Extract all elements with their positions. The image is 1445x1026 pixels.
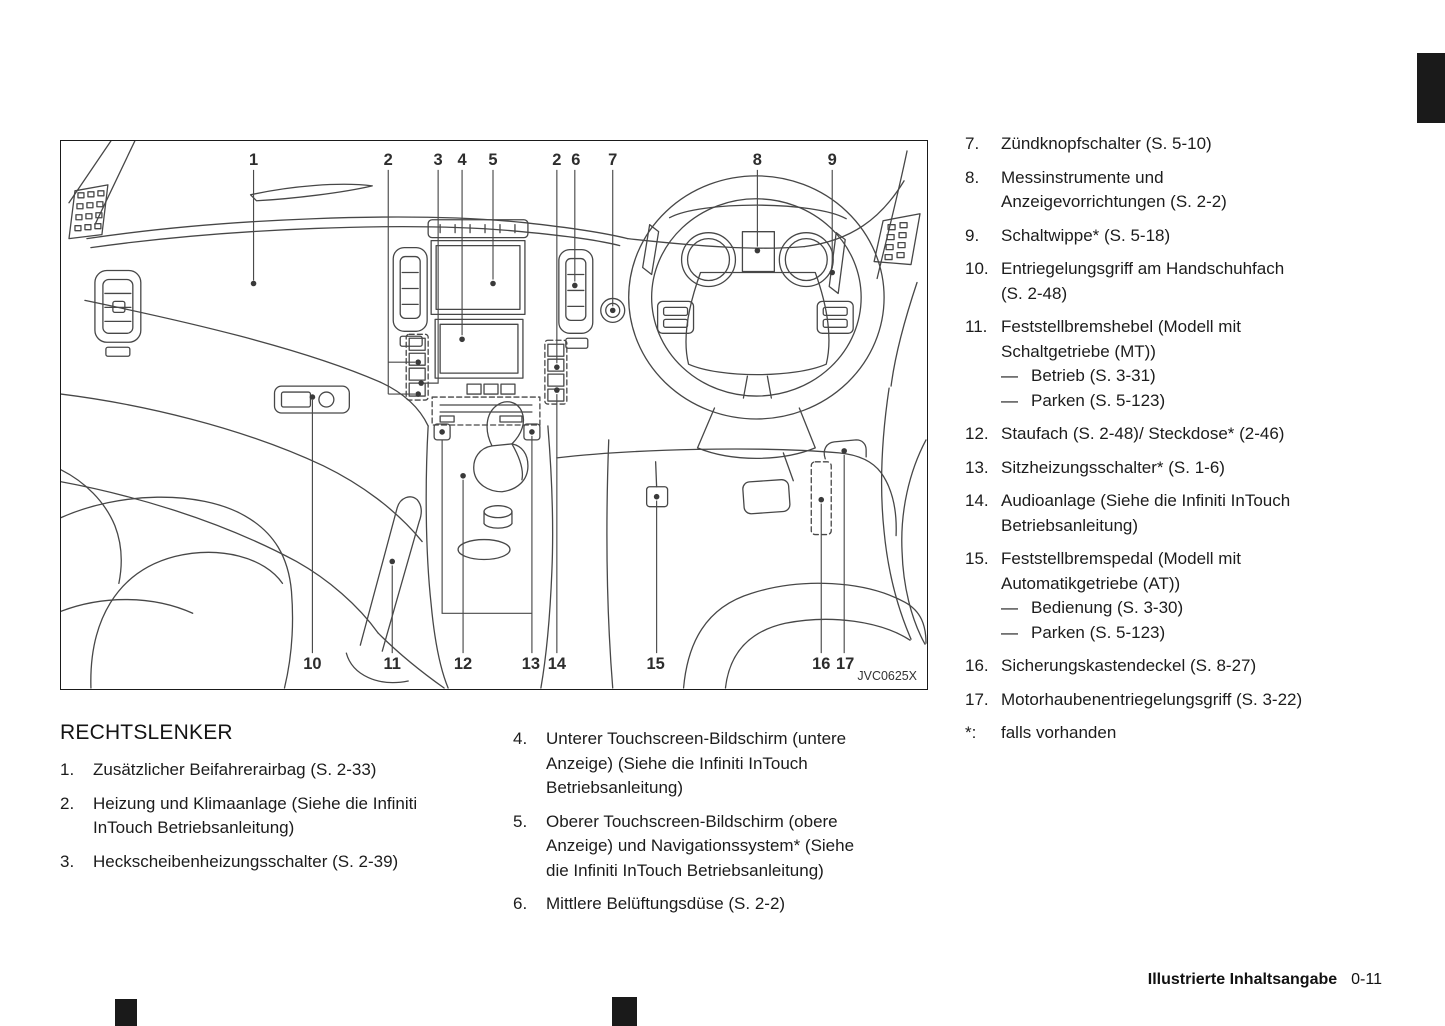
callout-15: 15 — [646, 655, 664, 673]
item-number: 8. — [965, 166, 1001, 215]
item-text: Feststellbremspedal (Modell mit Automati… — [1001, 547, 1423, 645]
print-mark — [612, 997, 637, 1026]
item-text: Zusätzlicher Beifahrerairbag (S. 2-33) — [93, 758, 508, 783]
print-mark — [115, 999, 137, 1026]
item-number: 1. — [60, 758, 93, 783]
dash-bullet: — — [1001, 596, 1031, 621]
section-tab-marker — [1417, 53, 1445, 123]
list-item: 16. Sicherungskastendeckel (S. 8-27) — [965, 654, 1423, 679]
figure-code: JVC0625X — [857, 669, 917, 683]
callout-5: 5 — [488, 151, 497, 169]
legend-heading: RECHTSLENKER — [60, 721, 508, 745]
callout-labels: 1 2 3 4 5 2 6 7 8 9 10 11 12 13 14 15 16… — [249, 151, 854, 673]
callout-6: 6 — [571, 151, 580, 169]
list-item: 14. Audioanlage (Siehe die Infiniti InTo… — [965, 489, 1423, 538]
callout-14: 14 — [548, 655, 567, 673]
item-number: 7. — [965, 132, 1001, 157]
callout-17: 17 — [836, 655, 854, 673]
sub-item: —Bedienung (S. 3-30) — [1001, 596, 1423, 621]
callout-2b: 2 — [552, 151, 561, 169]
dash-bullet: — — [1001, 621, 1031, 646]
item-text: Sitzheizungsschalter* (S. 1-6) — [1001, 456, 1423, 481]
callout-11: 11 — [384, 655, 401, 673]
item-number: 10. — [965, 257, 1001, 306]
callout-3: 3 — [434, 151, 443, 169]
callout-7: 7 — [608, 151, 617, 169]
callout-16: 16 — [812, 655, 830, 673]
list-item: 6. Mittlere Belüftungsdüse (S. 2-2) — [513, 892, 951, 917]
item-number: 6. — [513, 892, 546, 917]
item-number: *: — [965, 721, 1001, 746]
sub-item: —Parken (S. 5-123) — [1001, 621, 1423, 646]
list-item: 13. Sitzheizungsschalter* (S. 1-6) — [965, 456, 1423, 481]
callout-12: 12 — [454, 655, 472, 673]
list-item: 8. Messinstrumente und Anzeigevorrichtun… — [965, 166, 1423, 215]
list-item: 4. Unterer Touchscreen-Bildschirm (unter… — [513, 727, 951, 801]
item-number: 12. — [965, 422, 1001, 447]
legend-column-left: RECHTSLENKER 1. Zusätzlicher Beifahrerai… — [60, 721, 508, 883]
callout-8: 8 — [753, 151, 762, 169]
item-text: Motorhaubenentriegelungsgriff (S. 3-22) — [1001, 688, 1423, 713]
dashboard-diagram-figure: 1 2 3 4 5 2 6 7 8 9 10 11 12 13 14 15 16… — [60, 140, 928, 690]
item-number: 14. — [965, 489, 1001, 538]
footer-page-number: 0-11 — [1351, 971, 1382, 988]
dashboard-line-art: 1 2 3 4 5 2 6 7 8 9 10 11 12 13 14 15 16… — [61, 141, 927, 689]
item-text: Oberer Touchscreen-Bildschirm (obere Anz… — [546, 810, 951, 884]
item-text: Zündknopfschalter (S. 5-10) — [1001, 132, 1423, 157]
callout-4: 4 — [457, 151, 467, 169]
footer-section-title: Illustrierte Inhaltsangabe — [1148, 971, 1337, 988]
item-text: Mittlere Belüftungsdüse (S. 2-2) — [546, 892, 951, 917]
callout-1: 1 — [249, 151, 258, 169]
item-number: 5. — [513, 810, 546, 884]
item-number: 4. — [513, 727, 546, 801]
manual-page: 1 2 3 4 5 2 6 7 8 9 10 11 12 13 14 15 16… — [0, 0, 1445, 1026]
legend-column-right: 7. Zündknopfschalter (S. 5-10) 8. Messin… — [965, 132, 1423, 755]
steering-wheel — [629, 176, 884, 458]
list-item: 1. Zusätzlicher Beifahrerairbag (S. 2-33… — [60, 758, 508, 783]
item-number: 15. — [965, 547, 1001, 645]
item-number: 11. — [965, 315, 1001, 413]
item-number: 3. — [60, 850, 93, 875]
item-text: Heizung und Klimaanlage (Siehe die Infin… — [93, 792, 508, 841]
item-number: 17. — [965, 688, 1001, 713]
item-text: Messinstrumente und Anzeigevorrichtungen… — [1001, 166, 1423, 215]
item-text: Feststellbremshebel (Modell mit Schaltge… — [1001, 315, 1423, 413]
item-text: Sicherungskastendeckel (S. 8-27) — [1001, 654, 1423, 679]
list-item: 10. Entriegelungsgriff am Handschuhfach … — [965, 257, 1423, 306]
sub-item: —Parken (S. 5-123) — [1001, 389, 1423, 414]
item-text: falls vorhanden — [1001, 721, 1423, 746]
callout-9: 9 — [828, 151, 837, 169]
leader-lines — [251, 170, 847, 653]
sub-item: —Betrieb (S. 3-31) — [1001, 364, 1423, 389]
list-item: 3. Heckscheibenheizungsschalter (S. 2-39… — [60, 850, 508, 875]
list-item: 17. Motorhaubenentriegelungsgriff (S. 3-… — [965, 688, 1423, 713]
callout-13: 13 — [522, 655, 540, 673]
legend-column-middle: 4. Unterer Touchscreen-Bildschirm (unter… — [513, 727, 951, 926]
item-number: 2. — [60, 792, 93, 841]
dash-bullet: — — [1001, 389, 1031, 414]
list-item: 5. Oberer Touchscreen-Bildschirm (obere … — [513, 810, 951, 884]
callout-2a: 2 — [384, 151, 393, 169]
page-footer: Illustrierte Inhaltsangabe0-11 — [1148, 971, 1382, 989]
item-text: Staufach (S. 2-48)/ Steckdose* (2-46) — [1001, 422, 1423, 447]
item-text: Audioanlage (Siehe die Infiniti InTouch … — [1001, 489, 1423, 538]
callout-10: 10 — [303, 655, 321, 673]
list-item: 2. Heizung und Klimaanlage (Siehe die In… — [60, 792, 508, 841]
dash-bullet: — — [1001, 364, 1031, 389]
list-item: 11. Feststellbremshebel (Modell mit Scha… — [965, 315, 1423, 413]
item-text: Schaltwippe* (S. 5-18) — [1001, 224, 1423, 249]
list-item: 9. Schaltwippe* (S. 5-18) — [965, 224, 1423, 249]
item-number: 9. — [965, 224, 1001, 249]
item-number: 13. — [965, 456, 1001, 481]
item-text: Unterer Touchscreen-Bildschirm (untere A… — [546, 727, 951, 801]
list-item: 12. Staufach (S. 2-48)/ Steckdose* (2-46… — [965, 422, 1423, 447]
list-item: 15. Feststellbremspedal (Modell mit Auto… — [965, 547, 1423, 645]
item-text: Heckscheibenheizungsschalter (S. 2-39) — [93, 850, 508, 875]
item-text: Entriegelungsgriff am Handschuhfach (S. … — [1001, 257, 1423, 306]
footnote-item: *: falls vorhanden — [965, 721, 1423, 746]
item-number: 16. — [965, 654, 1001, 679]
list-item: 7. Zündknopfschalter (S. 5-10) — [965, 132, 1423, 157]
